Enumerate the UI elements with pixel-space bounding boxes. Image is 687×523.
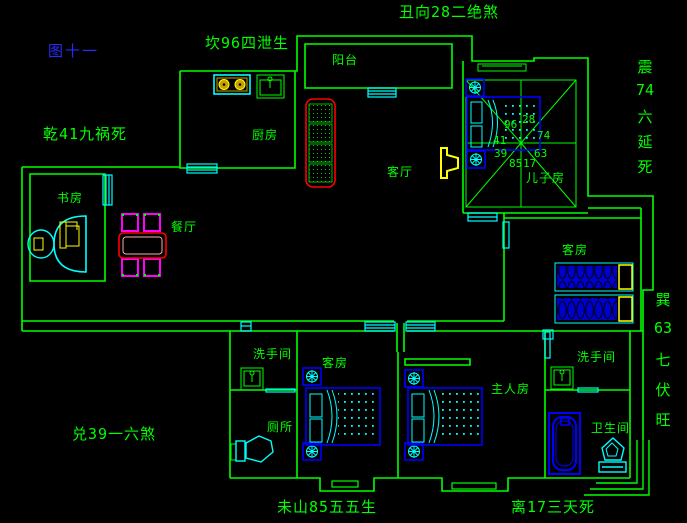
- room-label-toilet: 厕所: [267, 421, 293, 433]
- room-label-washroom-east: 洗手间: [577, 351, 616, 363]
- annotation-line: 七: [650, 349, 676, 379]
- compass-number-sw: 85: [509, 158, 522, 169]
- annotation-line: 63: [650, 319, 676, 349]
- room-label-study: 书房: [57, 192, 83, 204]
- room-label-living: 客厅: [387, 166, 413, 178]
- annotation-north: 坎96四泄生: [205, 36, 289, 51]
- annotation-line: 伏: [650, 379, 676, 409]
- annotation-line: 六: [632, 106, 658, 131]
- annotation-line: 旺: [650, 409, 676, 439]
- room-label-kitchen: 厨房: [252, 129, 278, 141]
- compass-number-se: 17: [523, 158, 536, 169]
- compass-number-nw: 96: [504, 119, 517, 130]
- floor-plan-drawing: [0, 0, 687, 523]
- room-label-guest-south: 客房: [322, 357, 348, 369]
- annotation-northeast: 丑向28二绝煞: [399, 5, 499, 20]
- annotation-south-east: 离17三天死: [511, 500, 595, 515]
- annotation-line: 死: [632, 156, 658, 181]
- compass-number-wsw: 39: [494, 148, 507, 159]
- room-label-bathroom: 卫生间: [591, 422, 630, 434]
- compass-number-w: 41: [493, 135, 506, 146]
- annotation-line: 延: [632, 131, 658, 156]
- room-label-son: 儿子房: [526, 172, 565, 184]
- annotation-east-upper: 震 74 六 延 死: [632, 56, 658, 181]
- annotation-line: 震: [632, 56, 658, 81]
- compass-number-e: 74: [537, 130, 550, 141]
- room-label-dining: 餐厅: [171, 221, 197, 233]
- annotation-line: 74: [632, 81, 658, 106]
- room-label-washroom-west: 洗手间: [253, 348, 292, 360]
- floor-plan-canvas: 图十一 坎96四泄生 丑向28二绝煞 乾41九祸死 兑39一六煞 未山85五五生…: [0, 0, 687, 523]
- compass-number-ne: 28: [522, 114, 535, 125]
- annotation-west-upper: 乾41九祸死: [43, 127, 127, 142]
- annotation-west-lower: 兑39一六煞: [72, 427, 156, 442]
- figure-label: 图十一: [48, 44, 99, 59]
- annotation-line: 巽: [650, 289, 676, 319]
- room-label-master: 主人房: [491, 383, 530, 395]
- room-label-guest-east: 客房: [562, 244, 588, 256]
- annotation-east-lower: 巽 63 七 伏 旺: [650, 289, 676, 439]
- annotation-south-west: 未山85五五生: [277, 500, 377, 515]
- room-label-balcony: 阳台: [332, 54, 358, 66]
